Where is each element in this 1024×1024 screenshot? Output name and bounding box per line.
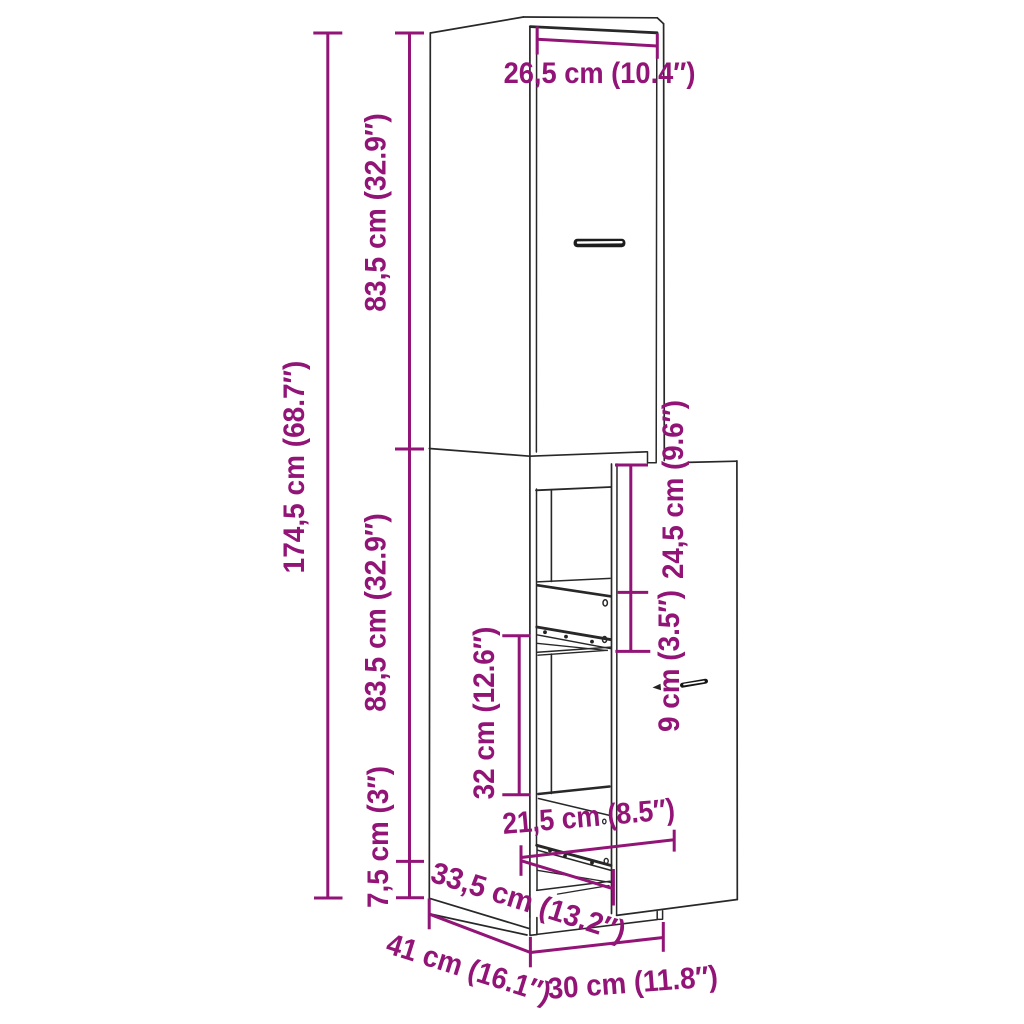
svg-text:7,5 cm (3″): 7,5 cm (3″) (362, 766, 395, 908)
svg-text:32 cm (12.6″): 32 cm (12.6″) (468, 627, 501, 800)
svg-text:83,5 cm (32.9″): 83,5 cm (32.9″) (360, 513, 393, 712)
svg-text:174,5 cm (68.7″): 174,5 cm (68.7″) (278, 361, 311, 574)
svg-text:9 cm (3.5″): 9 cm (3.5″) (653, 590, 686, 732)
svg-text:26,5 cm (10.4″): 26,5 cm (10.4″) (504, 57, 696, 90)
svg-text:24,5 cm (9.6″): 24,5 cm (9.6″) (657, 400, 690, 579)
svg-text:83,5 cm (32.9″): 83,5 cm (32.9″) (360, 113, 393, 312)
